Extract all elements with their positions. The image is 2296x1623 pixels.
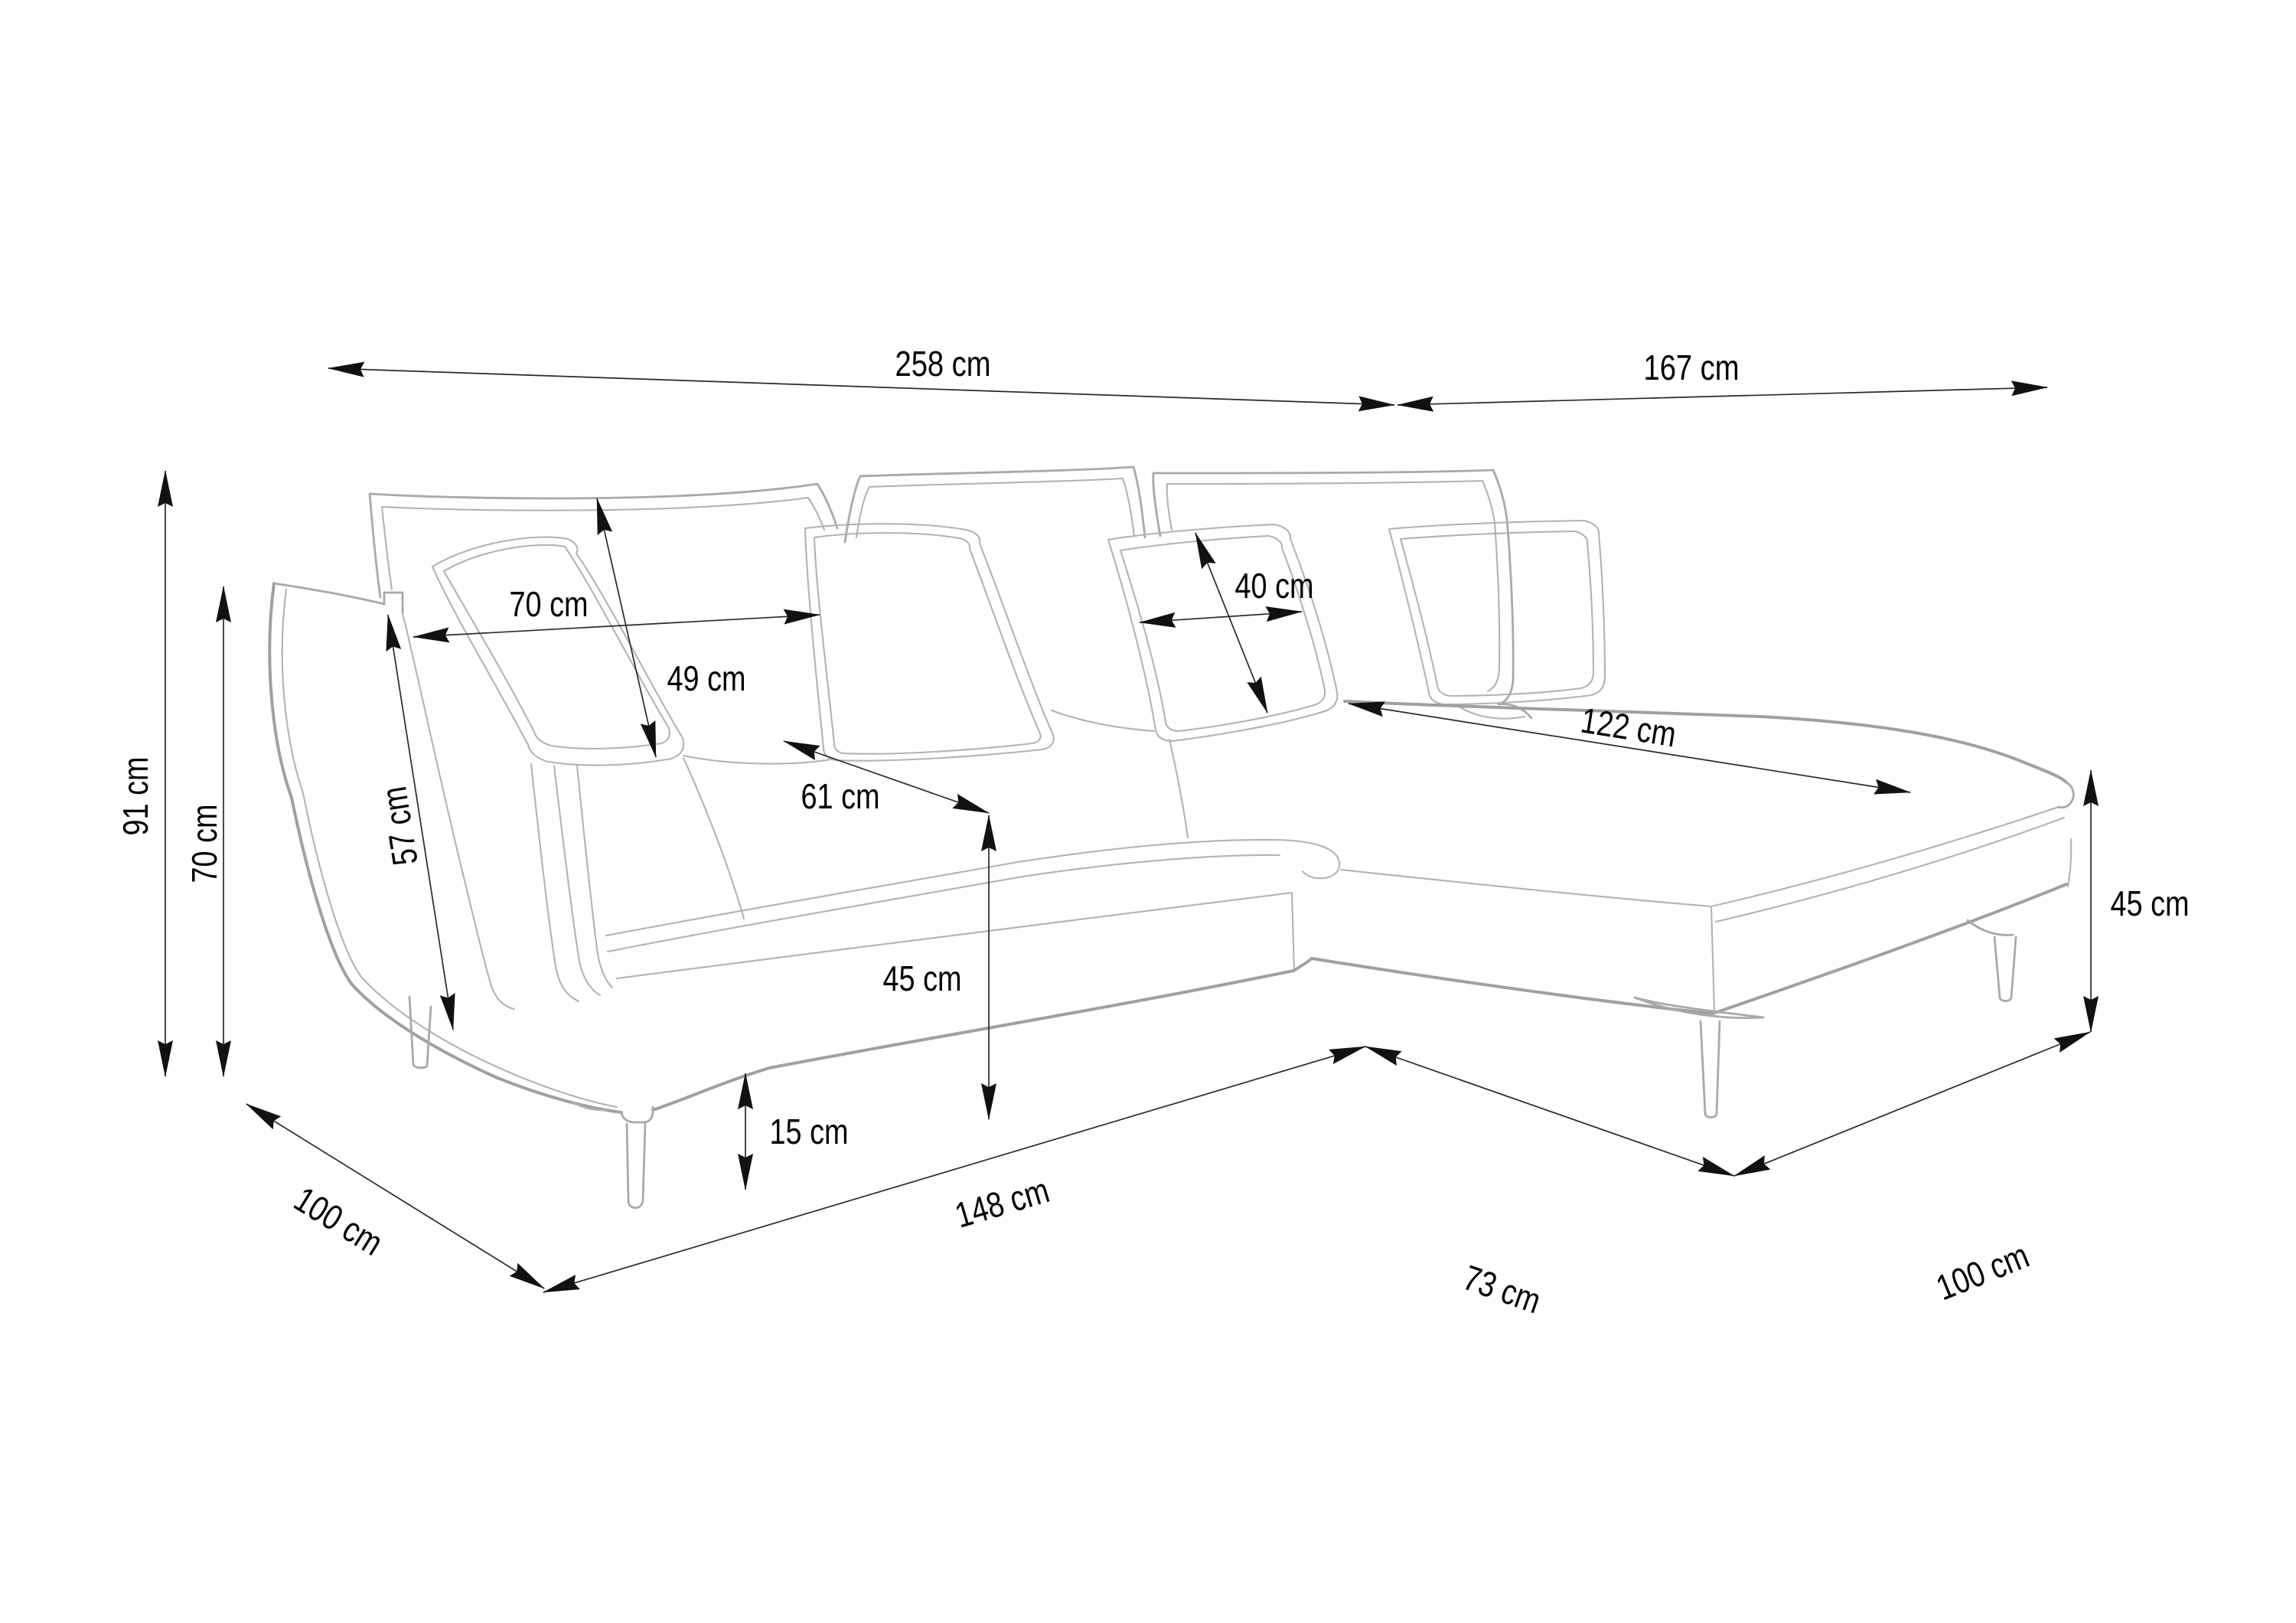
svg-text:49 cm: 49 cm	[667, 658, 746, 698]
svg-text:15 cm: 15 cm	[770, 1112, 849, 1151]
svg-text:70 cm: 70 cm	[184, 805, 224, 883]
svg-text:91 cm: 91 cm	[116, 757, 155, 836]
svg-text:61 cm: 61 cm	[801, 776, 880, 816]
svg-text:45 cm: 45 cm	[2111, 883, 2190, 923]
svg-text:45 cm: 45 cm	[883, 958, 962, 998]
svg-text:70 cm: 70 cm	[510, 584, 589, 624]
svg-text:167 cm: 167 cm	[1644, 348, 1740, 387]
svg-text:258 cm: 258 cm	[895, 344, 991, 384]
svg-text:40 cm: 40 cm	[1235, 566, 1314, 606]
